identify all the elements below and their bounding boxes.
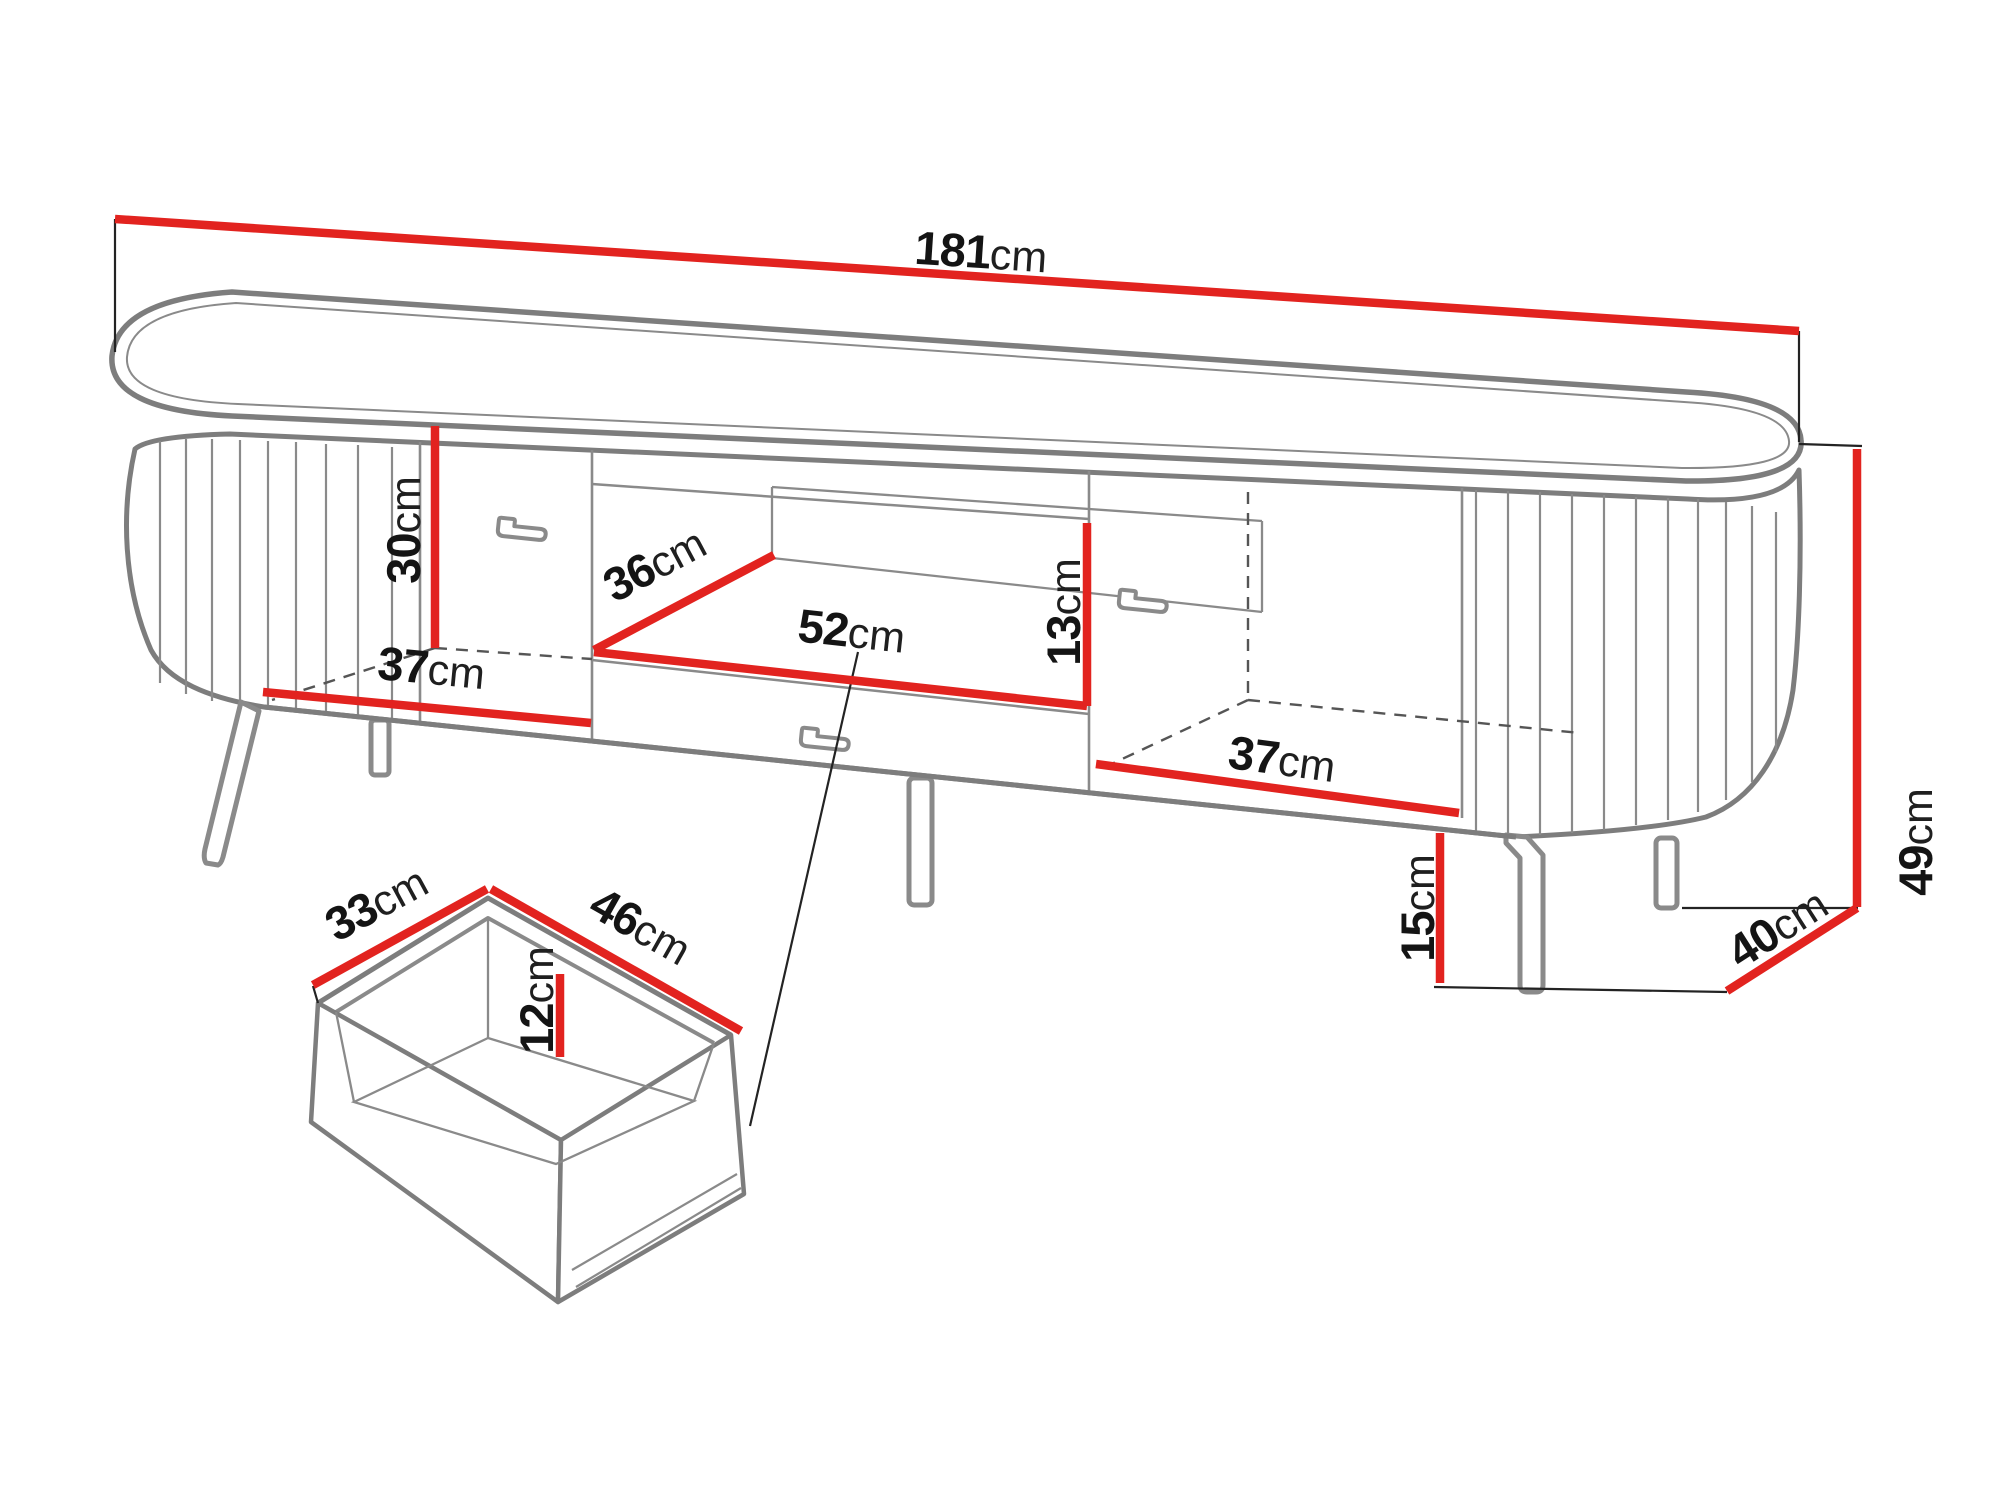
label-drawer-height: 12cm [510, 946, 563, 1054]
ext-total-height-top [1799, 444, 1862, 446]
leg-center [909, 778, 932, 905]
diagram-page: 181cm 30cm 36cm 52cm 13cm 37cm 37cm 49cm… [0, 0, 2000, 1500]
label-drawer-depth: 33cm [316, 854, 436, 952]
leg-left-angled [204, 702, 259, 865]
ext-drawer-depth-tick [313, 986, 318, 1003]
furniture-dimension-diagram: 181cm 30cm 36cm 52cm 13cm 37cm 37cm 49cm… [0, 0, 2000, 1500]
leg-right-front-bent [1506, 835, 1543, 992]
label-leg-height: 15cm [1391, 854, 1444, 962]
label-left-interior-height: 30cm [377, 476, 430, 584]
ext-floor-front [1434, 987, 1727, 992]
leg-right-rear [1656, 838, 1677, 908]
label-total-height: 49cm [1889, 788, 1942, 896]
label-niche-height: 13cm [1037, 558, 1090, 666]
leg-left-rear [371, 720, 389, 775]
label-total-width: 181cm [913, 221, 1049, 283]
